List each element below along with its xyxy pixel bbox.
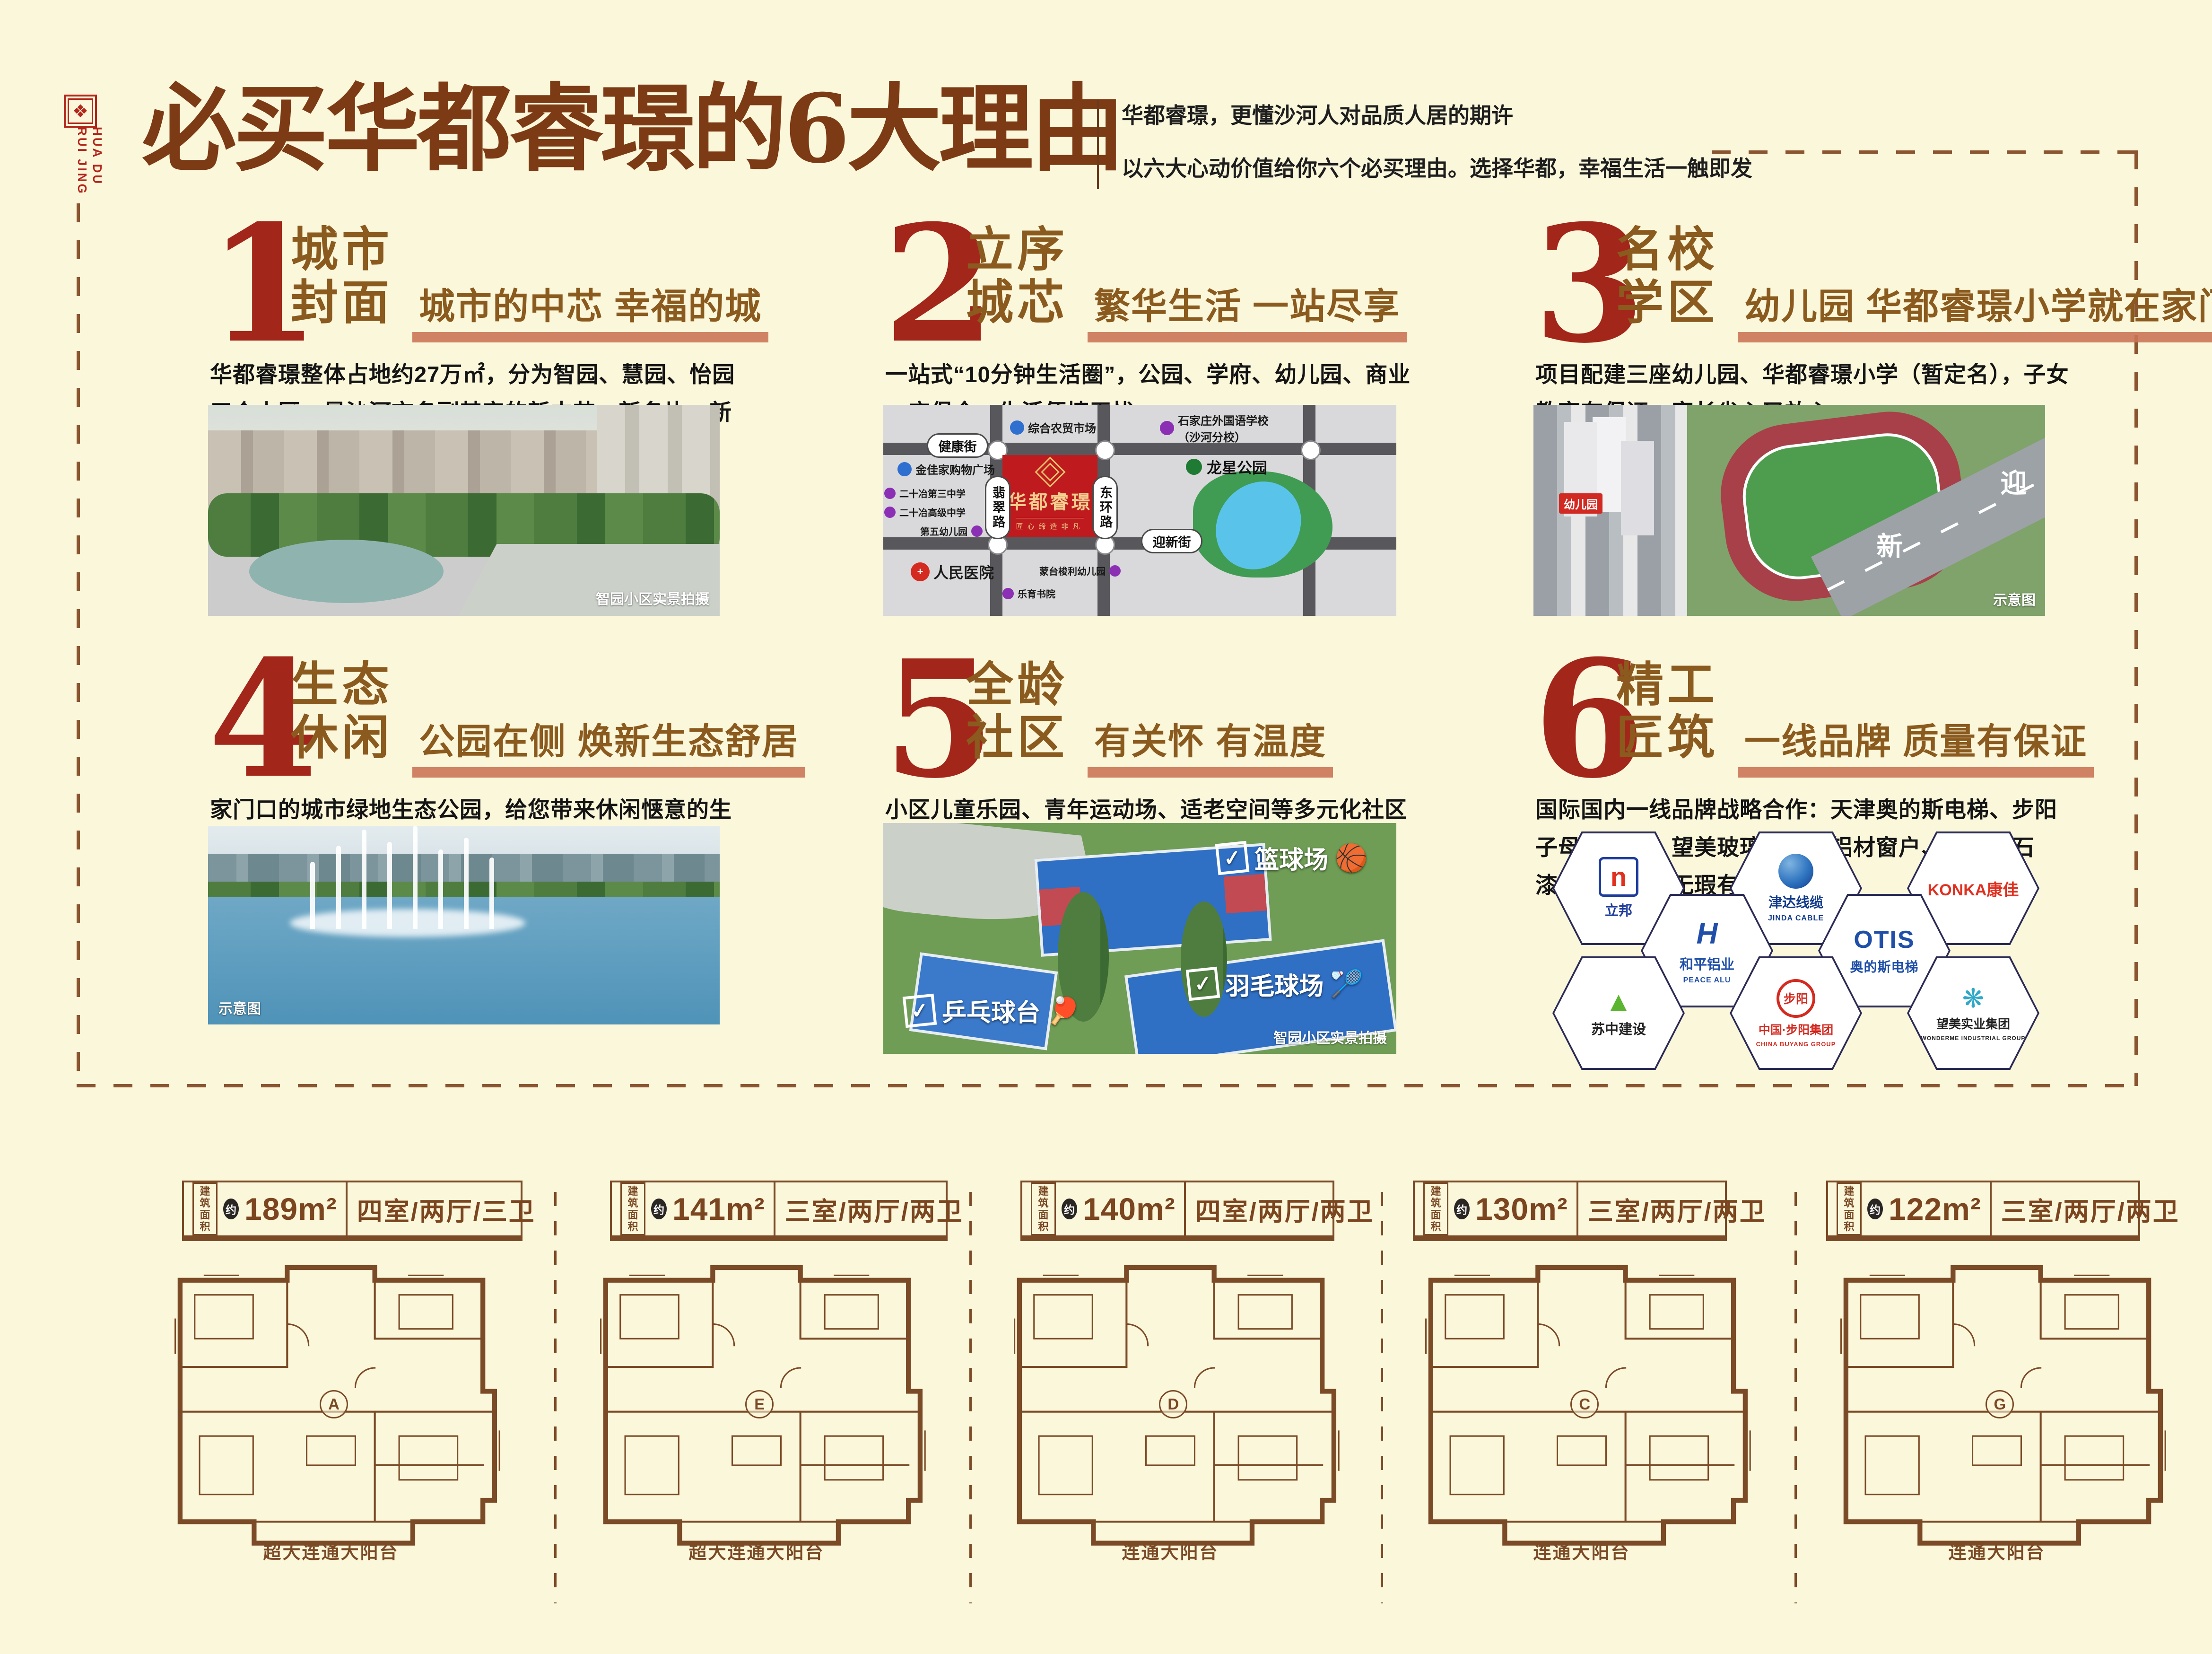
- reason-6-subtitle: 一线品牌 质量有保证: [1738, 712, 2094, 778]
- reason-3-title: 名校学区: [1616, 223, 1718, 329]
- area-prefix: 建筑面积: [620, 1182, 645, 1235]
- reason-5-title: 全龄社区: [966, 658, 1068, 764]
- plan-3-letter: D: [1159, 1390, 1187, 1418]
- hospital-cross-icon: +: [911, 562, 930, 581]
- map-park-lake: [1199, 464, 1319, 586]
- reason-4-subtitle: 公园在侧 焕新生态舒居: [412, 712, 805, 778]
- poi-leyu-academy: 乐育书院: [1002, 586, 1055, 600]
- photo3-road-char1: 迎: [2000, 462, 2027, 500]
- poi-hospital: +人民医院: [911, 561, 994, 583]
- badminton-icon: 🏸: [1330, 968, 1363, 999]
- photo4-fountain-jet: [464, 838, 469, 929]
- plan-5-drawing: G 连通大阳台: [1810, 1251, 2184, 1582]
- photo3-caption: 示意图: [1993, 588, 2036, 609]
- poi-no5-kindergarten: 第五幼儿园: [920, 524, 983, 538]
- approx-badge: 约: [651, 1199, 667, 1219]
- frame-dash-top: [1712, 150, 2137, 154]
- area-prefix: 建筑面积: [1837, 1182, 1862, 1235]
- photo4-fountain-jet: [489, 858, 494, 929]
- plan-1-area: 189m²: [244, 1191, 337, 1227]
- photo4-fountain-jet: [310, 862, 315, 929]
- photo4-fountain-jet: [438, 849, 443, 929]
- plan-3-area: 140m²: [1083, 1191, 1176, 1227]
- poster-root: ❖ HUA DURUI JING 必买华都睿璟的6大理由 华都睿璟，更懂沙河人对…: [0, 0, 2212, 1654]
- checkbox-icon: ✓: [903, 993, 937, 1028]
- area-prefix: 建筑面积: [1031, 1182, 1056, 1235]
- approx-badge: 约: [1062, 1199, 1077, 1219]
- reason-5: 5 全龄社区 有关怀 有温度 小区儿童乐园、青年运动场、适老空间等多元化社区配套…: [883, 657, 1396, 1055]
- reason-3-photo: 迎 新 幼儿园 示意图: [1533, 405, 2045, 616]
- project-ornament-icon: [1035, 456, 1065, 487]
- reason-3-subtitle: 幼儿园 华都睿璟小学就在家门口: [1738, 277, 2212, 342]
- court-key-right: [1224, 874, 1267, 913]
- poi-foreign-school: 石家庄外国语学校（沙河分校）: [1160, 411, 1269, 445]
- frame-dash-left: [77, 203, 80, 1085]
- reason-2-subtitle: 繁华生活 一站尽享: [1088, 277, 1407, 342]
- plan-3-layout: 四室/两厅/两卫: [1186, 1182, 1384, 1235]
- plan-4-letter: C: [1570, 1390, 1599, 1418]
- plan-4-label: 建筑面积约130m² 三室/两厅/两卫: [1413, 1181, 1727, 1241]
- location-map: 华都睿璟 匠心缔造非凡 健康街 迎新街 翡翠路 东环路 龙星公园 综合农贸市场 …: [883, 405, 1396, 616]
- area-prefix: 建筑面积: [192, 1182, 218, 1235]
- plan-2-layout: 三室/两厅/两卫: [775, 1182, 973, 1235]
- photo4-fountain-jet: [413, 826, 418, 929]
- reason-1: 1 城市封面 城市的中芯 幸福的城 华都睿璟整体占地约27万㎡，分为智园、慧园、…: [208, 222, 721, 653]
- plan-separator: [1794, 1192, 1797, 1603]
- plan-2-label: 建筑面积约141m² 三室/两厅/两卫: [610, 1181, 948, 1241]
- plan-1-layout: 四室/两厅/三卫: [348, 1182, 545, 1235]
- approx-badge: 约: [1867, 1199, 1883, 1219]
- photo4-fountain-jet: [362, 830, 366, 929]
- approx-badge: 约: [1454, 1199, 1470, 1219]
- poi-no3-school: 二十冶第三中学: [884, 486, 966, 500]
- photo3-kindergarten-badge: 幼儿园: [1559, 493, 1602, 514]
- tagline-line1: 华都睿璟，更懂沙河人对品质人居的期许: [1122, 89, 1752, 142]
- plan-4-area: 130m²: [1475, 1191, 1568, 1227]
- park-label: 龙星公园: [1186, 456, 1267, 478]
- frame-dash-bottom: [77, 1084, 2137, 1087]
- buyang-logo-icon: 步阳: [1777, 979, 1815, 1018]
- basketball-icon: 🏀: [1335, 842, 1368, 874]
- plan-1-drawing: A 超大连通大阳台: [142, 1251, 520, 1582]
- plan-5-layout: 三室/两厅/两卫: [1992, 1182, 2189, 1235]
- reason-4-photo: 示意图: [208, 826, 720, 1024]
- plan-5-letter: G: [1986, 1390, 2014, 1418]
- photo1-caption: 智园小区实景拍摄: [596, 587, 709, 608]
- area-prefix: 建筑面积: [1423, 1182, 1448, 1235]
- plan-1-balcony-label: 超大连通大阳台: [195, 1538, 467, 1564]
- plan-2-drawing: E 超大连通大阳台: [570, 1251, 943, 1582]
- plan-2-balcony-label: 超大连通大阳台: [622, 1538, 891, 1564]
- photo3-parking: [1533, 405, 1687, 616]
- reason-1-photo: 智园小区实景拍摄: [208, 405, 720, 616]
- tag-pingpong: ✓乒乓球台🏓: [904, 993, 1080, 1028]
- reason-1-subtitle: 城市的中芯 幸福的城: [412, 277, 768, 342]
- reason-2-title: 立序城芯: [966, 223, 1068, 329]
- reason-6-title: 精工匠筑: [1616, 658, 1718, 764]
- photo3-road-char2: 新: [1876, 525, 1903, 564]
- reason-5-subtitle: 有关怀 有温度: [1088, 712, 1333, 778]
- tag-badminton: ✓羽毛球场🏸: [1187, 966, 1363, 1002]
- reason-4-title: 生态休闲: [291, 658, 393, 764]
- poi-market: 综合农贸市场: [1010, 419, 1096, 436]
- logo-line1: HUA DU: [90, 127, 105, 185]
- plan-4-drawing: C 连通大阳台: [1395, 1251, 1768, 1582]
- plan-5-balcony-label: 连通大阳台: [1863, 1538, 2132, 1564]
- plan-1-letter: A: [320, 1390, 348, 1418]
- plan-separator: [1381, 1192, 1383, 1603]
- reason-1-title: 城市封面: [291, 223, 393, 329]
- plan-separator: [969, 1192, 972, 1603]
- tagline-line2: 以六大心动价值给你六个必买理由。选择华都，幸福生活一触即发: [1122, 142, 1752, 195]
- map-intersection: [1095, 440, 1115, 460]
- checkbox-icon: ✓: [1215, 840, 1250, 875]
- wonderme-logo-icon: ❋: [1962, 985, 1985, 1012]
- nippon-logo-icon: n: [1599, 857, 1638, 897]
- logo-line2: RUI JING: [75, 127, 89, 195]
- photo4-fountain-jet: [336, 846, 341, 929]
- poi-montessori: 蒙台梭利幼儿园: [1039, 564, 1121, 578]
- jinda-logo-icon: [1778, 854, 1813, 889]
- plan-5-area: 122m²: [1889, 1191, 1981, 1227]
- plan-4-balcony-label: 连通大阳台: [1447, 1538, 1716, 1564]
- street-label-donghuan: 东环路: [1092, 476, 1118, 539]
- map-project-block: 华都睿璟 匠心缔造非凡: [1002, 455, 1097, 537]
- brand-seal-icon: ❖: [64, 95, 97, 128]
- map-intersection: [1301, 440, 1321, 460]
- reason-2: 2 立序城芯 繁华生活 一站尽享 一站式“10分钟生活圈”，公园、学府、幼儿园、…: [883, 222, 1396, 653]
- photo1-pond: [249, 540, 444, 603]
- street-label-jiankang: 健康街: [927, 433, 988, 458]
- brand-wall: n 立邦 津达线缆 JINDA CABLE KONKA康佳 H 和平铝业 PEA…: [1538, 831, 2051, 1070]
- project-slogan: 匠心缔造非凡: [1016, 518, 1084, 531]
- reason-4: 4 生态休闲 公园在侧 焕新生态舒居 家门口的城市绿地生态公园，给您带来休闲惬意…: [208, 657, 721, 1055]
- plan-separator: [554, 1192, 557, 1603]
- pingpong-icon: 🏓: [1047, 995, 1080, 1026]
- checkbox-icon: ✓: [1186, 967, 1220, 1001]
- plan-4-layout: 三室/两厅/两卫: [1578, 1182, 1776, 1235]
- project-name: 华都睿璟: [1008, 487, 1093, 514]
- peace-alu-logo-icon: H: [1697, 917, 1718, 951]
- photo4-caption: 示意图: [218, 997, 261, 1018]
- header-divider: [1097, 100, 1099, 189]
- approx-badge: 约: [223, 1199, 239, 1219]
- street-label-feicui: 翡翠路: [985, 476, 1010, 539]
- plan-3-balcony-label: 连通大阳台: [1036, 1538, 1305, 1564]
- tag-basketball: ✓篮球场🏀: [1217, 840, 1368, 875]
- header-tagline: 华都睿璟，更懂沙河人对品质人居的期许 以六大心动价值给你六个必买理由。选择华都，…: [1122, 89, 1752, 195]
- photo4-fountain-jet: [387, 842, 392, 929]
- plan-3-drawing: D 连通大阳台: [984, 1251, 1357, 1582]
- page-title: 必买华都睿璟的6大理由: [142, 75, 1122, 184]
- reason-3: 3 名校学区 幼儿园 华都睿璟小学就在家门口 项目配建三座幼儿园、华都睿璟小学（…: [1533, 222, 2047, 653]
- suzhong-logo-icon: ▲: [1605, 988, 1632, 1015]
- reason-5-photo: ✓篮球场🏀 ✓羽毛球场🏸 ✓乒乓球台🏓 智园小区实景拍摄: [883, 823, 1396, 1054]
- plan-2-letter: E: [745, 1390, 774, 1418]
- poi-senior-school: 二十冶高级中学: [884, 505, 966, 519]
- plan-1-label: 建筑面积约189m² 四室/两厅/三卫: [182, 1181, 523, 1241]
- plan-3-label: 建筑面积约140m² 四室/两厅/两卫: [1020, 1181, 1334, 1241]
- reason-6: 6 精工匠筑 一线品牌 质量有保证 国际国内一线品牌战略合作：天津奥的斯电梯、步…: [1533, 657, 2047, 1055]
- plan-5-label: 建筑面积约122m² 三室/两厅/两卫: [1826, 1181, 2140, 1241]
- photo5-caption: 智园小区实景拍摄: [1273, 1026, 1387, 1047]
- street-label-yingxin: 迎新街: [1141, 529, 1202, 553]
- park-icon: [1186, 459, 1202, 475]
- plan-2-area: 141m²: [672, 1191, 765, 1227]
- poi-shopping-plaza: 金佳家购物广场: [897, 461, 995, 477]
